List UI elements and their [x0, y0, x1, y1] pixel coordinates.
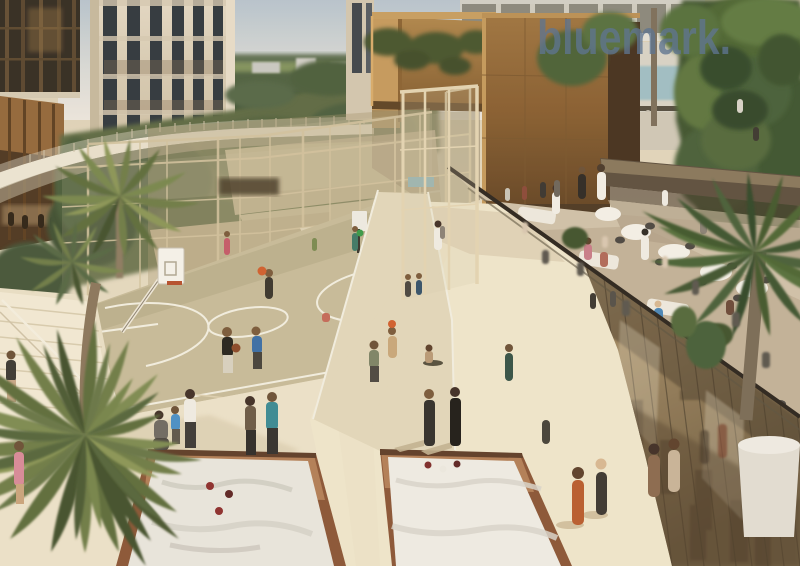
- svg-text:bluemark.: bluemark.: [537, 12, 731, 65]
